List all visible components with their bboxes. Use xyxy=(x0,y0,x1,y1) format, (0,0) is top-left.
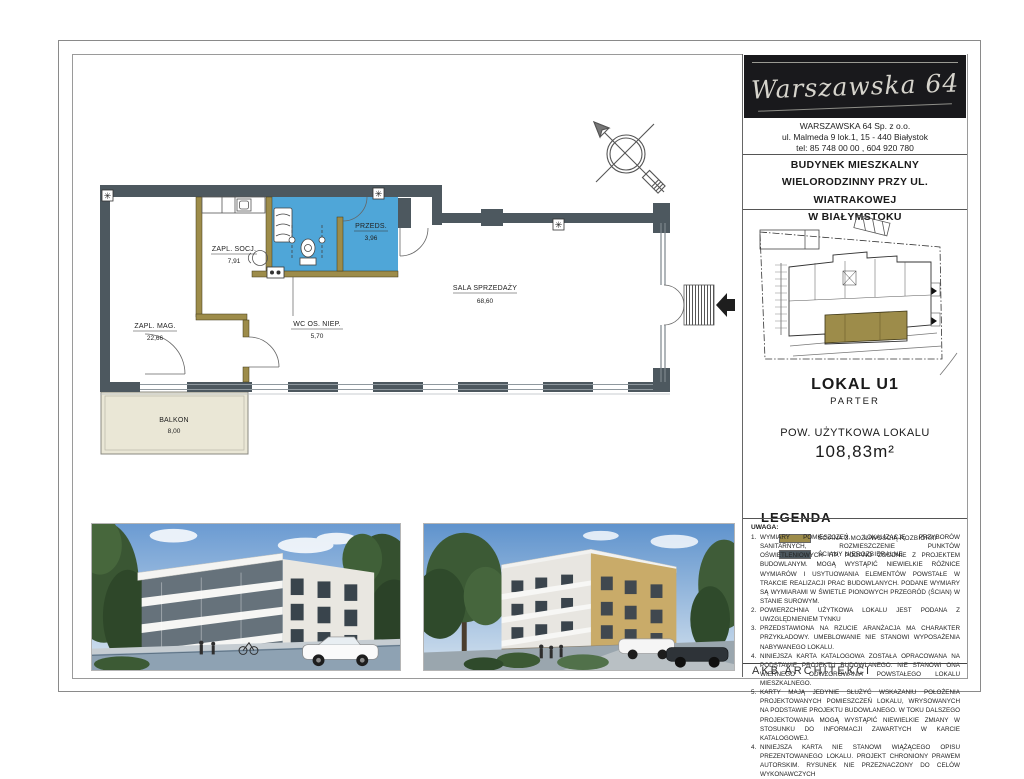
entry-markers xyxy=(931,287,937,325)
entrance-arrow-icon xyxy=(716,293,735,317)
company-address: ul. Malmeda 9 lok.1, 15 - 440 Białystok xyxy=(743,132,967,143)
notes-list: 1.WYMIARY POMIESZCZEŃ, LOKALIZACJĘ PRZYB… xyxy=(751,533,960,779)
svg-text:8,00: 8,00 xyxy=(168,428,181,435)
unit-area-value: 108,83m² xyxy=(743,442,967,462)
unit-floor: PARTER xyxy=(743,396,967,407)
svg-text:68,60: 68,60 xyxy=(477,298,494,305)
appliance-icon xyxy=(267,267,284,278)
unit-name: LOKAL U1 xyxy=(743,376,967,394)
note-item: 4.NINIEJSZA KARTA NIE STANOWI WIĄŻĄCEGO … xyxy=(751,743,960,779)
north-arrow-icon xyxy=(576,104,674,202)
floor-plan-drawing: ✳ ✳ ✳ ZAPL. SOCJ. 7,91 ZAPL. MAG. 22,66 … xyxy=(85,170,740,470)
kitchenette xyxy=(202,197,265,213)
catalog-sheet: ✳ ✳ ✳ ZAPL. SOCJ. 7,91 ZAPL. MAG. 22,66 … xyxy=(0,0,1024,724)
notes-section: UWAGA: 1.WYMIARY POMIESZCZEŃ, LOKALIZACJ… xyxy=(743,518,967,663)
unit-area-label: POW. UŻYTKOWA LOKALU xyxy=(743,427,967,439)
architect-studio: AKB ARCHITEKCI xyxy=(743,663,967,678)
project-title: BUDYNEK MIESZKALNY WIELORODZINNY PRZY UL… xyxy=(743,152,967,210)
svg-text:PRZEDS.: PRZEDS. xyxy=(355,223,387,230)
entrance-mat xyxy=(684,285,714,325)
note-item: 1.WYMIARY POMIESZCZEŃ, LOKALIZACJĘ PRZYB… xyxy=(751,533,960,606)
title-block: Warszawska 64 WARSZAWSKA 64 Sp. z o.o. u… xyxy=(742,54,967,677)
svg-text:5,70: 5,70 xyxy=(311,333,324,340)
building-photo-2 xyxy=(424,524,734,670)
svg-text:✳: ✳ xyxy=(104,191,112,201)
logo-text: Warszawska 64 xyxy=(750,68,959,104)
svg-text:SALA SPRZEDAŻY: SALA SPRZEDAŻY xyxy=(453,283,517,292)
unit-info: LOKAL U1 PARTER POW. UŻYTKOWA LOKALU 108… xyxy=(743,376,967,462)
svg-text:7,91: 7,91 xyxy=(228,258,241,265)
site-location-plan xyxy=(745,205,965,384)
svg-text:WC OS. NIEP.: WC OS. NIEP. xyxy=(293,321,340,328)
svg-text:✳: ✳ xyxy=(555,220,563,230)
svg-text:BALKON: BALKON xyxy=(159,417,189,424)
company-name: WARSZAWSKA 64 Sp. z o.o. xyxy=(743,121,967,132)
storefront-glazing xyxy=(661,223,665,382)
note-item: 3.PRZEDSTAWIONA NA RZUCIE ARANŻACJA MA C… xyxy=(751,624,960,651)
company-info: WARSZAWSKA 64 Sp. z o.o. ul. Malmeda 9 l… xyxy=(743,118,967,155)
note-item: 2.POWIERZCHNIA UŻYTKOWA LOKALU JEST PODA… xyxy=(751,606,960,624)
unit-location-highlight xyxy=(825,311,907,343)
note-item: 5.KARTY MAJĄ JEDYNIE SŁUŻYĆ WSKAZANIU PO… xyxy=(751,688,960,743)
notes-title: UWAGA: xyxy=(751,524,960,531)
door-swings xyxy=(145,197,684,374)
svg-text:ZAPL. SOCJ.: ZAPL. SOCJ. xyxy=(212,246,256,253)
svg-text:ZAPL. MAG.: ZAPL. MAG. xyxy=(134,323,175,330)
svg-text:3,96: 3,96 xyxy=(365,235,378,242)
building-photo-1 xyxy=(92,524,400,670)
company-logo: Warszawska 64 xyxy=(744,55,966,118)
svg-text:✳: ✳ xyxy=(375,189,383,199)
svg-text:22,66: 22,66 xyxy=(147,335,164,342)
